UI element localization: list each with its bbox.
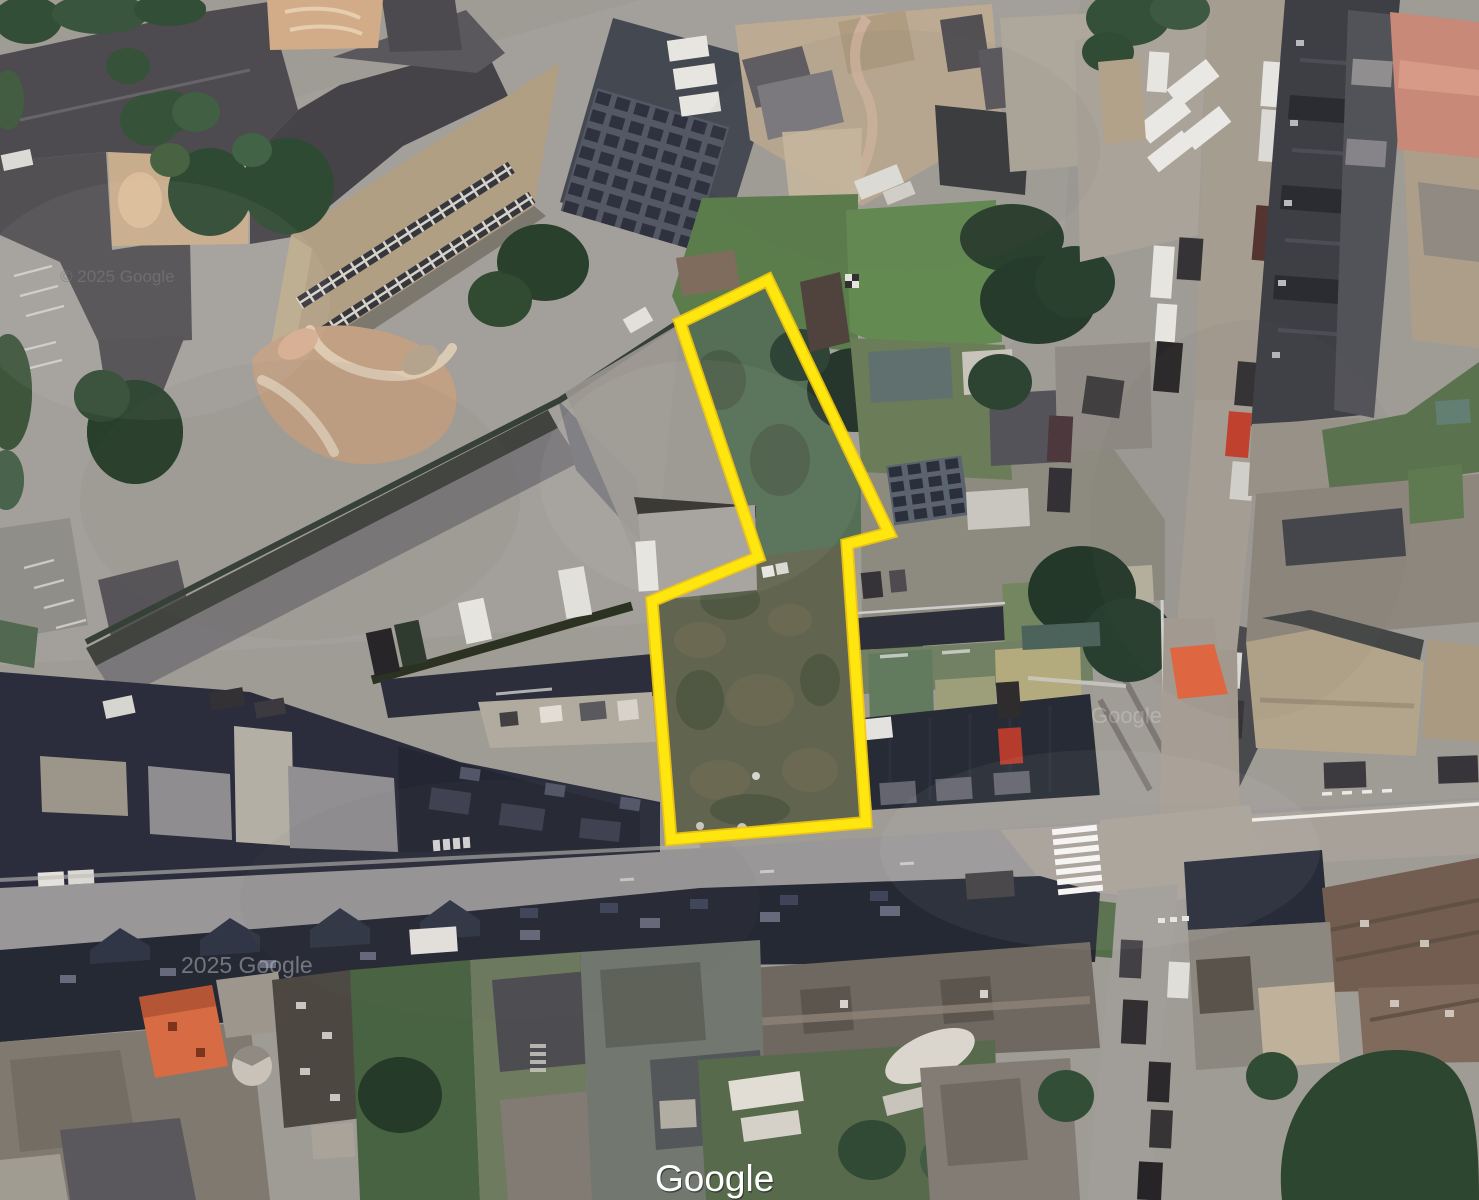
svg-text:2025 Google: 2025 Google	[181, 952, 313, 978]
svg-text:Google: Google	[1091, 703, 1162, 728]
svg-text:Google: Google	[655, 1158, 774, 1199]
svg-text:© 2025 Google: © 2025 Google	[60, 267, 175, 286]
